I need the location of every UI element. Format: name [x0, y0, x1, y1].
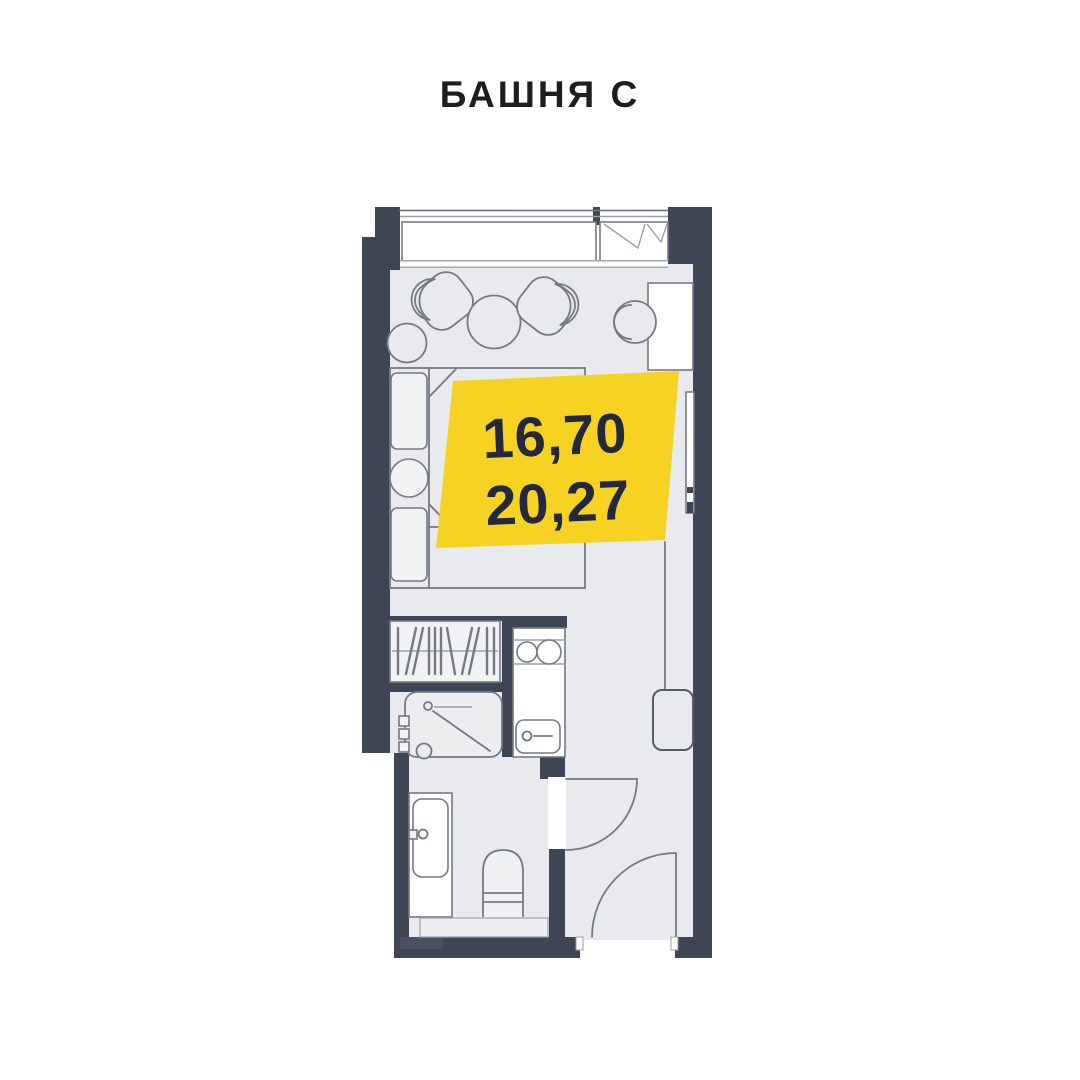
area-living-value: 16,70	[481, 401, 629, 470]
area-total-value: 20,27	[484, 468, 632, 537]
utility-shaft	[653, 690, 693, 750]
faucet-head	[417, 744, 432, 759]
wall-left-lower	[394, 753, 409, 958]
area-badge[interactable]: 16,70 20,27	[436, 371, 679, 548]
wall-right	[693, 262, 712, 958]
faucet-valve	[399, 742, 409, 752]
vanity-faucet	[409, 830, 417, 839]
coffee-table	[468, 296, 521, 349]
sink-bowl	[537, 640, 561, 664]
side-table	[388, 324, 427, 363]
door-jamb	[576, 937, 583, 950]
vanity-basin	[413, 799, 448, 877]
balcony-bench	[402, 222, 596, 262]
radiator-panel	[686, 392, 694, 513]
wall-left	[362, 268, 390, 753]
door-jamb	[671, 937, 678, 950]
wall-niche	[400, 937, 443, 949]
floor-plan-page: БАШНЯ С	[0, 0, 1080, 1080]
wardrobe	[390, 621, 500, 682]
toilet	[483, 850, 523, 917]
bathroom-step	[420, 918, 548, 937]
wall-top-right-block	[668, 207, 712, 264]
floor-plan: 16,70 20,27	[0, 0, 1080, 1080]
round-cushion	[390, 459, 428, 497]
wall-kitchen-divider	[502, 616, 513, 757]
desk-chair	[614, 301, 656, 343]
sink-bowl	[517, 642, 537, 662]
wall-bath-hall	[549, 847, 565, 940]
faucet-valve	[399, 729, 409, 739]
wall-wardrobe-bottom	[388, 682, 502, 692]
wall-bath-corner	[540, 757, 565, 779]
bathroom-door-opening	[548, 777, 566, 849]
wall-top-left-block	[362, 207, 400, 270]
pillow	[391, 373, 427, 449]
kitchen	[513, 628, 565, 757]
radiator-bracket	[687, 502, 693, 513]
radiator-bracket	[687, 487, 693, 493]
pillow	[391, 508, 427, 581]
faucet-valve	[399, 716, 409, 726]
